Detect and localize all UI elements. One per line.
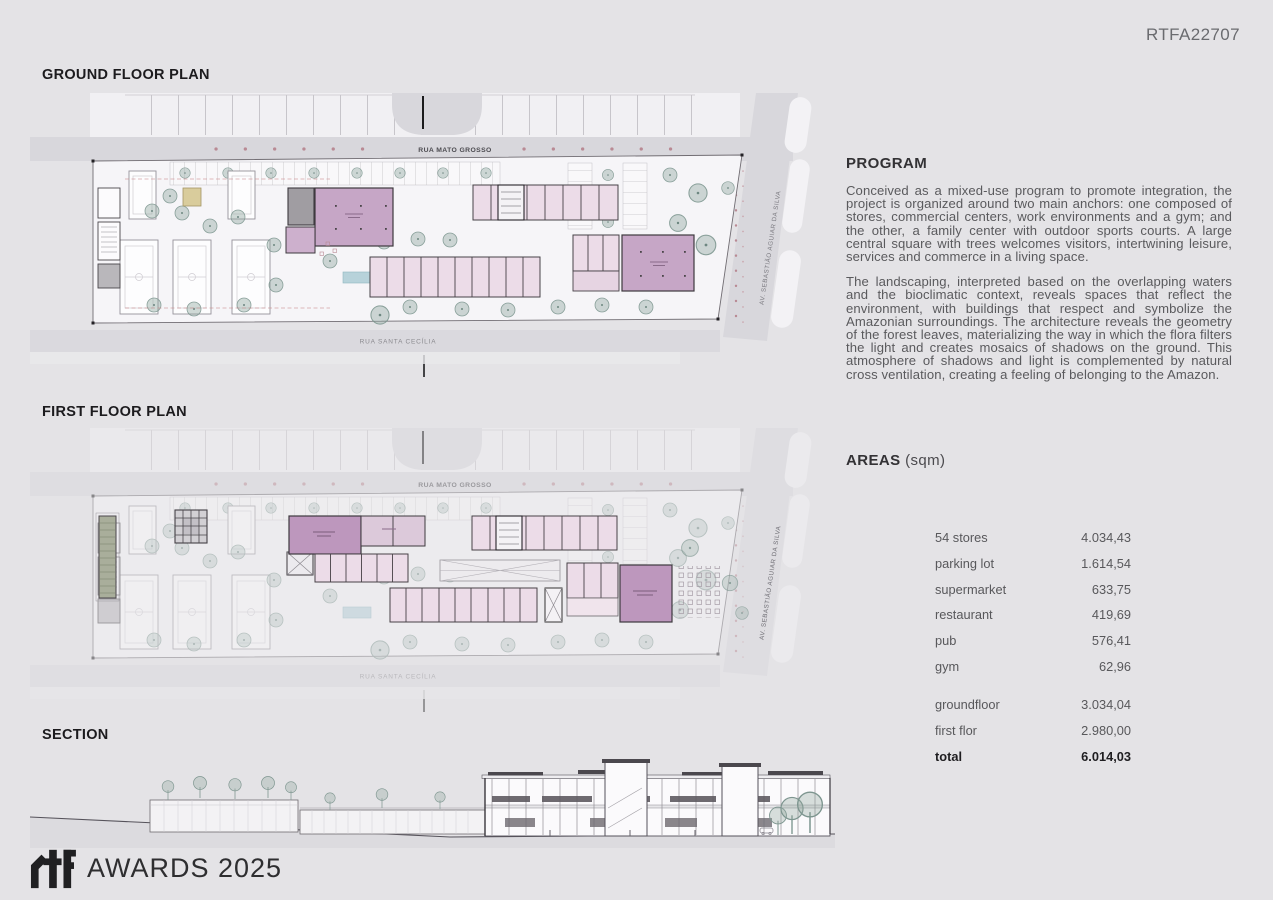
gym-block [289, 516, 361, 554]
section-drawing-area [30, 748, 835, 848]
ground-floor-title: GROUND FLOOR PLAN [42, 67, 210, 83]
program-panel: PROGRAM Conceived as a mixed-use program… [846, 155, 1232, 381]
project-code: RTFA22707 [1146, 25, 1240, 45]
store-row-t2 [472, 516, 617, 550]
section-left-building [150, 777, 298, 833]
roof-terrace [678, 566, 722, 618]
area-row: 54 stores4.034,43 [935, 525, 1131, 551]
area-row: parking lot1.614,54 [935, 551, 1131, 577]
footer: AWARDS 2025 [28, 845, 282, 891]
brand-text: AWARDS 2025 [87, 853, 282, 884]
kiosk-block [183, 188, 201, 206]
program-paragraph-1: Conceived as a mixed-use program to prom… [846, 184, 1232, 263]
ground-floor-plan [30, 93, 825, 380]
pub-upper-block [620, 565, 672, 622]
areas-title-unit: (sqm) [905, 452, 945, 469]
first-floor-plan-drawing: AV. SEBASTIÃO AGUIAR DA SILVA [30, 428, 825, 715]
program-title: PROGRAM [846, 155, 1232, 172]
areas-gap [935, 679, 1131, 692]
areas-title: AREAS (sqm) [846, 452, 1136, 469]
annex-block [286, 227, 315, 253]
presentation-board: RUA MATO GROSSO AV. SEBASTIÃO AGUIAR DA … [0, 0, 1273, 900]
store-block-c [573, 235, 619, 291]
first-floor-title: FIRST FLOOR PLAN [42, 404, 187, 420]
rtf-logo [28, 846, 76, 890]
store-row-a [473, 185, 618, 220]
areas-panel: AREAS (sqm) 54 stores4.034,43 parking lo… [846, 452, 1136, 769]
section-main-building [482, 759, 830, 836]
section-title: SECTION [42, 727, 109, 743]
store-row-b [370, 257, 540, 297]
area-row: restaurant419,69 [935, 602, 1131, 628]
section-drawing [30, 748, 835, 848]
area-row: pub576,41 [935, 628, 1131, 654]
pub-block [622, 235, 694, 291]
store-row-t1 [315, 554, 408, 582]
store-block-s [567, 563, 618, 616]
program-paragraph-2: The landscaping, interpreted based on th… [846, 275, 1232, 381]
store-row-b1 [390, 588, 537, 622]
area-row: gym62,96 [935, 653, 1131, 679]
ground-floor-plan-drawing [30, 93, 825, 380]
service-block [288, 188, 314, 225]
area-total-row: total6.014,03 [935, 744, 1131, 770]
area-summary-row: groundfloor3.034,04 [935, 692, 1131, 718]
first-floor-plan: AV. SEBASTIÃO AGUIAR DA SILVA [30, 428, 825, 715]
skylight-grid [175, 510, 207, 543]
area-summary-row: first flor2.980,00 [935, 718, 1131, 744]
areas-title-main: AREAS [846, 452, 901, 469]
section-mid-building [300, 789, 485, 834]
area-row: supermarket633,75 [935, 576, 1131, 602]
planted-walkway [440, 560, 560, 581]
areas-table: 54 stores4.034,43 parking lot1.614,54 su… [935, 525, 1131, 769]
